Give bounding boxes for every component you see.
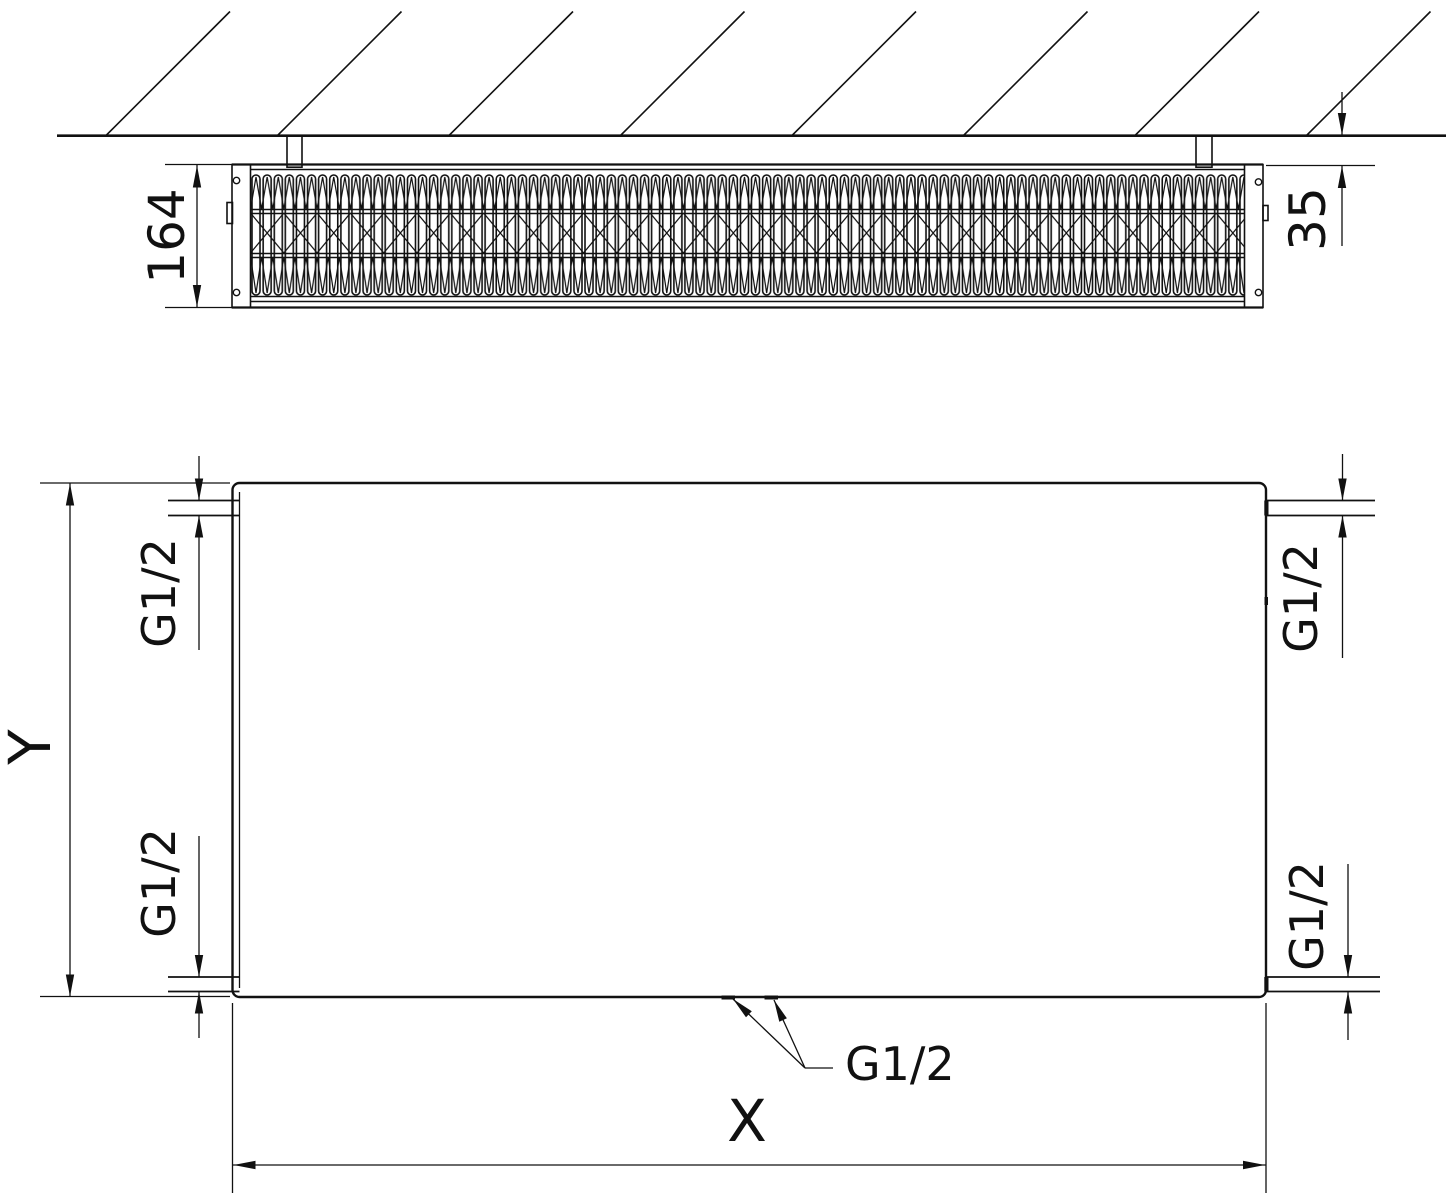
- radiator-panel: [233, 483, 1267, 997]
- drawing-canvas: 164 35: [0, 0, 1447, 1201]
- hatch-line: [792, 12, 916, 136]
- screw-hole: [233, 177, 239, 183]
- side-connection-boss-right: [1263, 206, 1268, 221]
- radiator-section: [227, 165, 1268, 308]
- bottom-connection-notch: [765, 996, 779, 1000]
- height-label: Y: [0, 729, 64, 766]
- dimension-height-Y: Y: [0, 483, 230, 997]
- hatch-line: [449, 12, 573, 136]
- dimension-depth-164: 164: [138, 165, 232, 308]
- thread-label-bottom-right: G1/2: [1280, 861, 1334, 971]
- hatch-line: [106, 12, 230, 136]
- connection-stub-top-left: [168, 501, 240, 516]
- front-view: G1/2 G1/2 G1/2 G1/2: [0, 454, 1380, 1193]
- width-label: X: [727, 1087, 767, 1155]
- bottom-connection-notch: [722, 996, 736, 1000]
- dimension-wall-clearance-35: 35: [1266, 92, 1375, 251]
- radiator-technical-drawing: 164 35: [0, 0, 1447, 1201]
- hatch-line: [964, 12, 1088, 136]
- mounting-bracket-right: [1196, 136, 1212, 168]
- dimension-thread-top-right: G1/2: [1274, 454, 1347, 658]
- thread-label-top-left: G1/2: [132, 538, 186, 648]
- mounting-bracket-left: [287, 136, 302, 168]
- wall-hatch: [106, 12, 1431, 136]
- dimension-thread-bottom-right: G1/2: [1280, 861, 1352, 1040]
- thread-label-bottom-left: G1/2: [132, 828, 186, 938]
- connection-stub-top-right: [1264, 501, 1375, 516]
- right-edge-nub: [1265, 597, 1269, 605]
- screw-hole: [233, 289, 239, 295]
- leader-thread-bottom-center: G1/2: [722, 996, 955, 1092]
- dimension-wall-clearance-label: 35: [1279, 187, 1337, 251]
- connection-stub-bottom-right: [1264, 977, 1380, 992]
- thread-label-bottom-center: G1/2: [845, 1037, 955, 1091]
- screw-hole: [1255, 289, 1261, 295]
- screw-hole: [1255, 179, 1261, 185]
- hatch-line: [1135, 12, 1259, 136]
- hatch-line: [1307, 12, 1431, 136]
- end-plate-right: [1245, 165, 1269, 308]
- hatch-line: [278, 12, 402, 136]
- hatch-line: [621, 12, 745, 136]
- convector-fins: [251, 174, 1245, 296]
- dimension-depth-label: 164: [138, 188, 196, 283]
- thread-label-top-right: G1/2: [1274, 543, 1328, 653]
- connection-stub-bottom-left: [168, 977, 240, 992]
- dimension-width-X: X: [233, 1003, 1267, 1193]
- dimension-thread-bottom-left: G1/2: [132, 828, 203, 1038]
- end-plate-left: [227, 165, 251, 308]
- top-view: 164 35: [57, 12, 1446, 308]
- dimension-thread-top-left: G1/2: [132, 456, 203, 650]
